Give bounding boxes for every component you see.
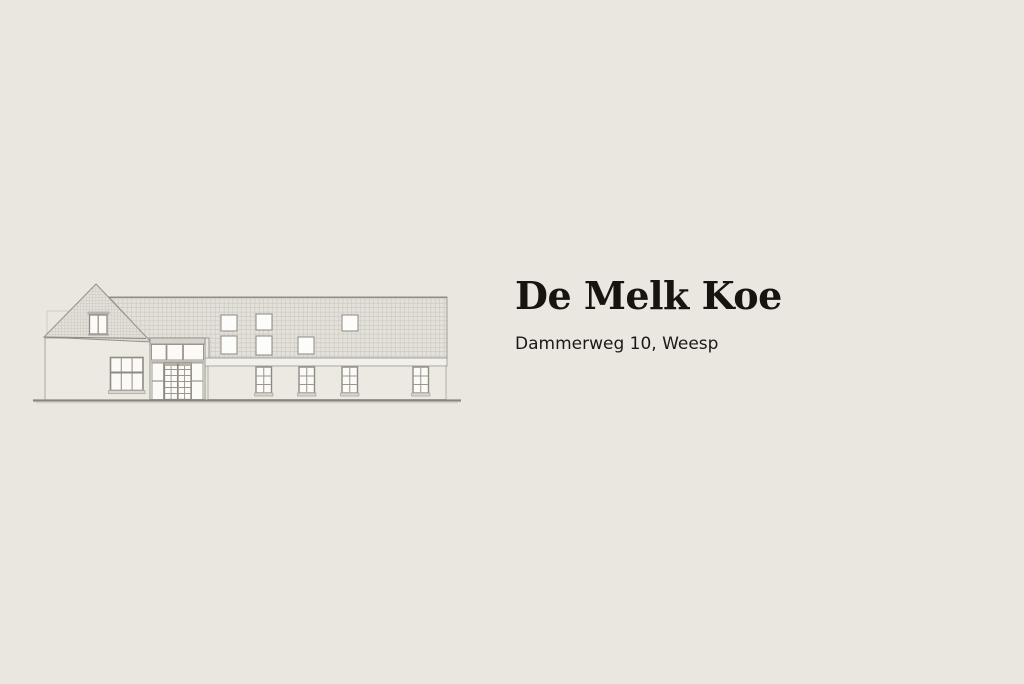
hero-text-block: De Melk Koe Dammerweg 10, Weesp [515, 276, 945, 354]
gable-window [88, 312, 110, 335]
main-wall [208, 366, 446, 400]
hero-section: De Melk Koe Dammerweg 10, Weesp [0, 0, 1024, 684]
address-subtitle: Dammerweg 10, Weesp [515, 334, 945, 354]
ground-line [33, 401, 461, 403]
entrance-doors [165, 363, 192, 400]
fascia-band [205, 358, 447, 366]
left-window [109, 358, 146, 394]
page-title: De Melk Koe [515, 276, 945, 316]
